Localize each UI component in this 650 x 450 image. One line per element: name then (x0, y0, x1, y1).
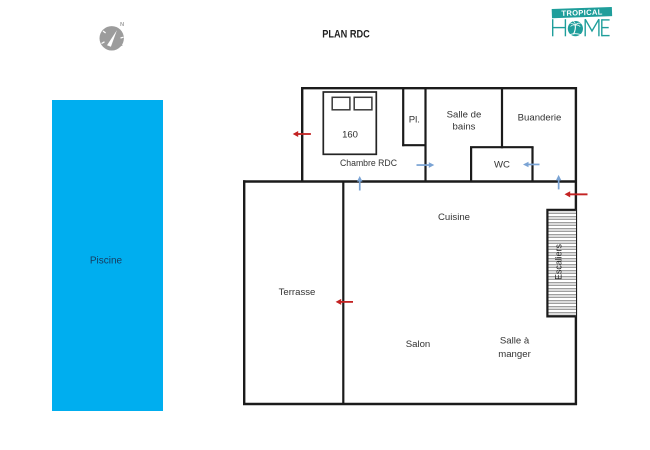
svg-text:160: 160 (342, 130, 358, 141)
svg-text:Piscine: Piscine (90, 256, 123, 267)
svg-text:manger: manger (498, 349, 531, 360)
svg-text:Terrasse: Terrasse (279, 287, 316, 298)
svg-text:Salon: Salon (406, 339, 431, 350)
svg-text:Buanderie: Buanderie (518, 113, 562, 124)
svg-text:Salle à: Salle à (500, 336, 530, 347)
svg-text:PLAN RDC: PLAN RDC (322, 29, 370, 41)
svg-text:Chambre RDC: Chambre RDC (340, 158, 397, 169)
svg-text:TROPICAL: TROPICAL (561, 7, 603, 17)
svg-text:Salle de: Salle de (447, 110, 482, 121)
svg-text:WC: WC (494, 160, 510, 171)
svg-text:Escaliers: Escaliers (554, 244, 564, 280)
svg-text:Pl.: Pl. (409, 115, 420, 126)
svg-text:Cuisine: Cuisine (438, 212, 470, 223)
svg-text:bains: bains (453, 122, 476, 133)
svg-text:N: N (120, 22, 124, 28)
